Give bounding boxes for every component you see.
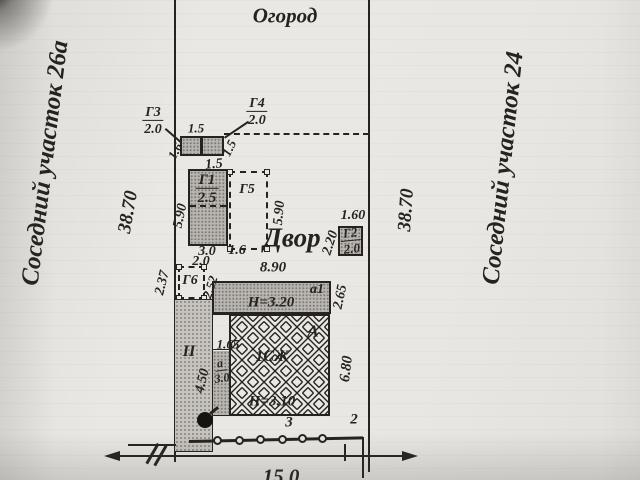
neighbor-left-label: Соседний участок 26а: [18, 39, 73, 287]
g3-size: 2.0: [144, 121, 162, 137]
g4-size: 2.0: [248, 112, 266, 128]
g1-top-dim: 1.5: [205, 157, 224, 172]
fence-post: [318, 434, 327, 443]
g3-label: Г3 2.0: [142, 105, 163, 137]
porch-top-dim: 1.65: [217, 338, 240, 351]
a1-height-label: Н=3.20: [248, 296, 294, 311]
g6-corner-post: [176, 264, 182, 270]
dimension-arrow-left: [104, 451, 120, 461]
g1-name: Г1: [196, 172, 219, 189]
yard-label: Двор: [263, 225, 320, 252]
a1-top-dim: 8.90: [260, 261, 286, 276]
g2-size: 2.0: [343, 240, 361, 257]
right-side-dim: 38.70: [395, 188, 417, 232]
main-house-height-label: Н=3.10: [249, 395, 295, 410]
porch-size: 3.0: [214, 370, 231, 386]
fence-end-tick: [344, 444, 346, 461]
main-house-use-label: 1СЖ: [255, 349, 288, 365]
g1-label: Г1 2.5: [196, 172, 219, 206]
fence-post: [213, 436, 222, 445]
bottom-left-line: [128, 444, 176, 446]
fence-post: [235, 436, 244, 445]
left-side-dim: 38.70: [115, 189, 141, 234]
dimension-arrow-right: [402, 451, 418, 461]
main-house-label: А: [307, 323, 318, 340]
point2-extension-line: [362, 437, 364, 478]
g5-corner-post: [264, 169, 270, 175]
neighbor-right-label: Соседний участок 24: [478, 50, 527, 286]
fence-point-3: 3: [285, 416, 293, 431]
g2-label: Г2 2.0: [339, 225, 362, 257]
fence-post: [278, 435, 287, 444]
fence-post: [298, 434, 307, 443]
right-boundary-line: [368, 0, 370, 472]
front-dim: 15.0: [263, 467, 300, 480]
zone-ii-label: II: [183, 344, 195, 360]
g2-top-dim: 1.60: [341, 209, 366, 223]
dashed-boundary-line: [224, 133, 369, 135]
g6-label: Г6: [182, 274, 197, 288]
a1-right-dim: 2.65: [332, 284, 351, 311]
g6-top-dim: 2.0: [192, 255, 210, 269]
g3-name: Г3: [142, 105, 163, 121]
g1-bottom-dim2: 1.6: [228, 244, 246, 258]
fence-post: [256, 435, 265, 444]
g5-label: Г5: [239, 183, 254, 197]
g5-right-dim: 5.90: [272, 200, 288, 226]
g4-label: Г4 2.0: [246, 96, 267, 128]
site-plan-scan: Огород Соседний участок 26а Соседний уча…: [0, 0, 640, 480]
g1-size: 2.5: [198, 189, 217, 206]
garden-label: Огород: [253, 6, 318, 27]
shed-top-dim: 1.5: [188, 122, 204, 135]
fence-point-2: 2: [350, 413, 358, 428]
a1-label: а1: [310, 283, 324, 297]
g6-left-dim: 2.37: [153, 269, 173, 296]
g5-corner-post: [227, 169, 233, 175]
g4-name: Г4: [246, 96, 267, 112]
house-right-dim: 6.80: [338, 355, 356, 383]
